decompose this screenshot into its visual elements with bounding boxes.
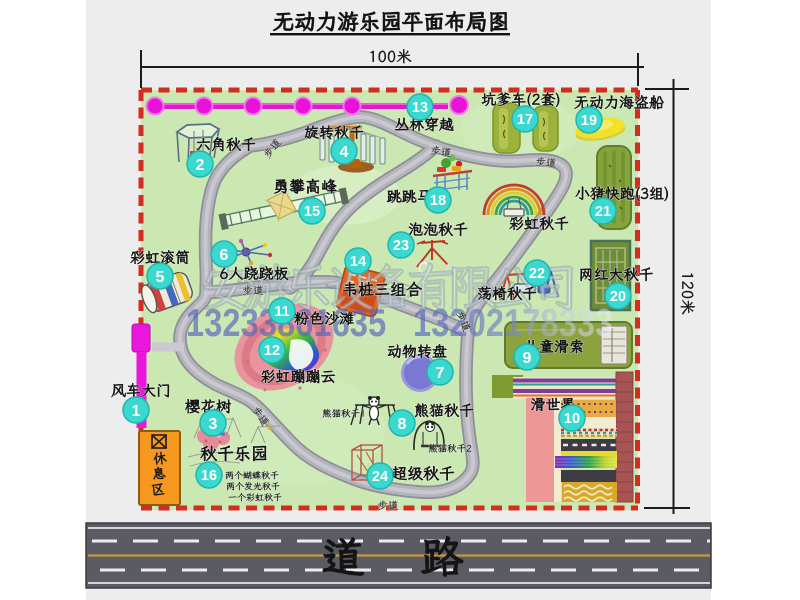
svg-text:12: 12 — [264, 343, 280, 359]
svg-text:24: 24 — [372, 469, 388, 485]
svg-text:9: 9 — [523, 350, 532, 367]
svg-text:11: 11 — [274, 304, 289, 320]
svg-text:3: 3 — [209, 416, 218, 433]
svg-text:13: 13 — [412, 100, 428, 116]
svg-text:18: 18 — [430, 193, 446, 209]
svg-text:21: 21 — [595, 204, 611, 220]
svg-text:2: 2 — [196, 157, 205, 174]
svg-text:5: 5 — [156, 269, 165, 286]
svg-text:8: 8 — [398, 416, 407, 433]
svg-text:16: 16 — [201, 468, 217, 484]
svg-text:22: 22 — [529, 266, 545, 282]
svg-text:7: 7 — [436, 365, 445, 382]
svg-text:4: 4 — [340, 144, 349, 161]
svg-text:6: 6 — [220, 247, 229, 264]
svg-text:15: 15 — [304, 204, 320, 220]
svg-text:19: 19 — [581, 113, 597, 129]
svg-text:14: 14 — [350, 254, 366, 270]
svg-text:13202178333: 13202178333 — [413, 301, 613, 344]
svg-text:10: 10 — [564, 411, 580, 427]
svg-text:1: 1 — [132, 403, 141, 420]
svg-text:17: 17 — [517, 112, 533, 128]
svg-text:20: 20 — [610, 289, 626, 305]
svg-text:23: 23 — [393, 238, 409, 254]
